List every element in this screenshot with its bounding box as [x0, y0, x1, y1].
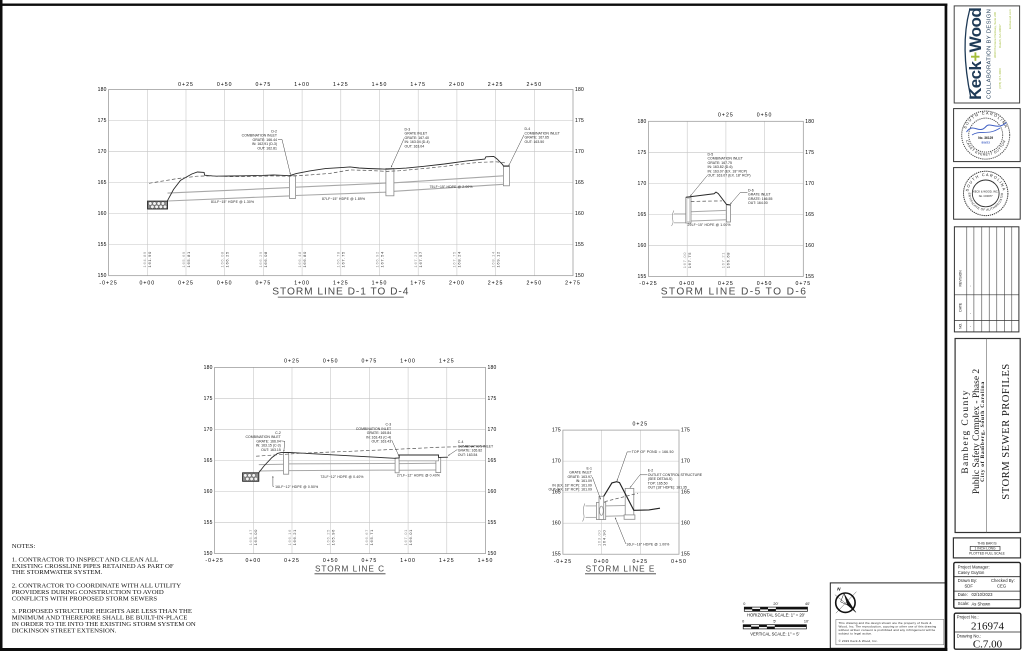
svg-text:166.25: 166.25 [225, 251, 230, 268]
svg-text:1+25: 1+25 [439, 558, 455, 564]
svg-text:40': 40' [805, 602, 810, 606]
svg-text:0: 0 [743, 602, 745, 606]
svg-text:OUT (18" HDPE): 161.35: OUT (18" HDPE): 161.35 [648, 486, 687, 490]
svg-text:155: 155 [204, 520, 213, 526]
svg-text:1+50: 1+50 [372, 82, 388, 88]
svg-text:175: 175 [204, 396, 213, 402]
svg-text:167.54: 167.54 [379, 251, 384, 268]
svg-text:180: 180 [575, 87, 584, 93]
svg-text:-: - [968, 313, 972, 314]
svg-text:175: 175 [552, 428, 561, 434]
svg-text:170: 170 [575, 149, 584, 155]
svg-text:164.90: 164.90 [601, 530, 606, 547]
svg-text:0+75: 0+75 [256, 280, 272, 286]
svg-text:155: 155 [98, 242, 107, 248]
svg-text:Duluth, GA 30097: Duluth, GA 30097 [998, 24, 1002, 48]
svg-text:REVISION: REVISION [959, 270, 963, 287]
svg-text:0+25: 0+25 [178, 82, 194, 88]
svg-text:169.12: 169.12 [495, 251, 500, 268]
svg-text:0+00: 0+00 [139, 280, 155, 286]
svg-text:10': 10' [804, 620, 809, 624]
svg-text:180: 180 [638, 119, 647, 125]
svg-text:150: 150 [204, 551, 213, 557]
svg-text:Scale:: Scale: [958, 601, 970, 606]
svg-text:-: - [968, 285, 972, 286]
svg-text:0+50: 0+50 [323, 558, 339, 564]
svg-text:5': 5' [773, 620, 776, 624]
svg-text:keckwood.com: keckwood.com [1008, 9, 1012, 29]
svg-text:180: 180 [98, 87, 107, 93]
svg-text:Bamberg County: Bamberg County [961, 389, 971, 474]
svg-text:155: 155 [638, 274, 647, 280]
svg-text:160: 160 [488, 489, 497, 495]
svg-text:OUT (EX. 18" RCP): 161.09: OUT (EX. 18" RCP): 161.09 [549, 488, 592, 492]
svg-text:0+50: 0+50 [671, 559, 687, 565]
svg-text:2+00: 2+00 [449, 82, 465, 88]
svg-text:Project Manager:: Project Manager: [958, 564, 990, 569]
svg-text:16LF~18" HDPE @ 1.00%: 16LF~18" HDPE @ 1.00% [626, 542, 669, 546]
svg-text:165: 165 [575, 180, 584, 186]
svg-text:STORM LINE D-1 TO D-4: STORM LINE D-1 TO D-4 [272, 287, 409, 298]
svg-text:165.81: 165.81 [186, 251, 191, 268]
svg-text:166.80: 166.80 [302, 251, 307, 268]
svg-text:1+50: 1+50 [478, 558, 494, 564]
svg-text:8/9/23: 8/9/23 [982, 140, 991, 144]
svg-text:175: 175 [638, 150, 647, 156]
svg-text:OUT: 163.54: OUT: 163.54 [458, 453, 478, 457]
svg-text:Drawn By:: Drawn By: [958, 578, 977, 583]
svg-text:-0+25: -0+25 [205, 558, 223, 564]
svg-text:Checked By:: Checked By: [991, 578, 1015, 583]
svg-text:subject to legal action.: subject to legal action. [839, 631, 873, 635]
svg-text:0+50: 0+50 [217, 82, 233, 88]
svg-text:-: - [968, 326, 972, 327]
svg-text:OUT: 163.07 (EX. 18" RCP): OUT: 163.07 (EX. 18" RCP) [708, 174, 751, 178]
svg-text:165: 165 [638, 212, 647, 218]
svg-text:C.7.00: C.7.00 [973, 639, 1003, 651]
svg-text:165.71: 165.71 [369, 529, 374, 546]
svg-text:TOP OF POND = 166.50: TOP OF POND = 166.50 [632, 450, 674, 454]
svg-text:160: 160 [575, 211, 584, 217]
svg-text:0+75: 0+75 [362, 558, 378, 564]
svg-text:166.08: 166.08 [263, 251, 268, 268]
svg-text:167.75: 167.75 [341, 251, 346, 268]
svg-text:3090 Premiere Parkway, Suite 2: 3090 Premiere Parkway, Suite 200 [993, 12, 997, 58]
svg-text:Project No.:: Project No.: [957, 615, 979, 620]
svg-text:167.75: 167.75 [687, 252, 692, 269]
svg-text:0+75: 0+75 [362, 359, 378, 365]
svg-text:STORM LINE D-5 TO D-6: STORM LINE D-5 TO D-6 [661, 287, 808, 298]
svg-text:155: 155 [575, 242, 584, 248]
svg-text:1+25: 1+25 [333, 280, 349, 286]
svg-text:NO.: NO. [959, 323, 963, 329]
svg-text:STORM LINE E: STORM LINE E [586, 564, 656, 573]
svg-text:170: 170 [552, 459, 561, 465]
svg-text:180: 180 [204, 365, 213, 371]
svg-text:2+25: 2+25 [488, 280, 504, 286]
svg-text:160: 160 [805, 243, 814, 249]
svg-text:170: 170 [805, 181, 814, 187]
svg-text:155: 155 [805, 274, 814, 280]
svg-text:1+00: 1+00 [400, 558, 416, 564]
svg-text:180: 180 [805, 119, 814, 125]
svg-text:160: 160 [638, 243, 647, 249]
svg-text:0+00: 0+00 [245, 558, 261, 564]
svg-text:2+50: 2+50 [526, 280, 542, 286]
svg-text:155: 155 [552, 552, 561, 558]
svg-text:STORM LINE C: STORM LINE C [315, 564, 385, 573]
svg-text:2+50: 2+50 [526, 82, 542, 88]
svg-text:175: 175 [488, 396, 497, 402]
svg-text:175: 175 [98, 118, 107, 124]
svg-text:168.24: 168.24 [457, 251, 462, 268]
svg-text:1+00: 1+00 [400, 359, 416, 365]
svg-text:THIS BAR IS: THIS BAR IS [977, 542, 997, 546]
svg-text:DICKINSON STREET EXTENSION.: DICKINSON STREET EXTENSION. [12, 627, 117, 634]
svg-text:170: 170 [98, 149, 107, 155]
svg-text:-0+25: -0+25 [554, 559, 572, 565]
svg-text:1+50: 1+50 [372, 280, 388, 286]
svg-text:155: 155 [488, 520, 497, 526]
svg-text:Casey Guyton: Casey Guyton [958, 570, 985, 575]
svg-text:0+25: 0+25 [718, 113, 734, 119]
svg-text:KECK & WOOD, INC.: KECK & WOOD, INC. [973, 189, 998, 193]
svg-text:PLOTTED FULL SCALE: PLOTTED FULL SCALE [969, 552, 1006, 556]
svg-text:0+25: 0+25 [178, 280, 194, 286]
svg-text:1+00: 1+00 [294, 82, 310, 88]
svg-text:81LF~15" HDPE @ 1.30%: 81LF~15" HDPE @ 1.30% [211, 200, 254, 204]
svg-text:160: 160 [204, 489, 213, 495]
svg-text:As Shown: As Shown [972, 601, 992, 606]
svg-text:161.90: 161.90 [147, 251, 152, 268]
svg-text:CEG: CEG [997, 584, 1006, 589]
svg-text:170: 170 [638, 181, 647, 187]
svg-text:216974: 216974 [971, 620, 1005, 632]
svg-text:STORM SEWER PROFILES: STORM SEWER PROFILES [1001, 363, 1012, 499]
svg-text:75LF~15" HDPE @ 2.00%: 75LF~15" HDPE @ 2.00% [430, 185, 473, 189]
svg-text:SDF: SDF [965, 584, 974, 589]
svg-text:87LF~15" HDPE @ 1.89%: 87LF~15" HDPE @ 1.89% [322, 197, 365, 201]
svg-text:165.96: 165.96 [331, 529, 336, 546]
svg-text:(678) 417-4000: (678) 417-4000 [998, 68, 1002, 89]
svg-text:OUT: 163.15: OUT: 163.15 [261, 448, 281, 452]
svg-text:NOTES:: NOTES: [12, 543, 36, 550]
svg-text:-0+25: -0+25 [639, 281, 657, 287]
svg-text:170: 170 [488, 427, 497, 433]
svg-text:72LF~12" HDPE @ 0.40%: 72LF~12" HDPE @ 0.40% [320, 475, 363, 479]
svg-text:0: 0 [742, 620, 744, 624]
svg-text:-0+25: -0+25 [99, 280, 117, 286]
svg-text:0+25: 0+25 [284, 359, 300, 365]
svg-text:OUT: 164.00: OUT: 164.00 [748, 201, 768, 205]
svg-text:1+00: 1+00 [294, 280, 310, 286]
svg-text:175: 175 [681, 428, 690, 434]
svg-text:175: 175 [575, 118, 584, 124]
svg-text:OUT: 163.50: OUT: 163.50 [525, 140, 545, 144]
svg-text:COLLABORATION BY DESIGN: COLLABORATION BY DESIGN [986, 9, 992, 99]
svg-text:OUT: 162.81: OUT: 162.81 [257, 146, 277, 150]
svg-text:© 2023 Keck & Wood, Inc.: © 2023 Keck & Wood, Inc. [839, 639, 878, 643]
svg-text:OUT: 163.43: OUT: 163.43 [372, 440, 392, 444]
svg-text:170: 170 [204, 427, 213, 433]
svg-text:DATE: DATE [959, 302, 963, 312]
svg-text:VERTICAL SCALE: 1" = 5': VERTICAL SCALE: 1" = 5' [750, 632, 799, 637]
svg-text:165: 165 [204, 458, 213, 464]
svg-text:0+75: 0+75 [256, 82, 272, 88]
svg-text:1+75: 1+75 [410, 280, 426, 286]
svg-text:THE STORMWATER SYSTEM.: THE STORMWATER SYSTEM. [12, 569, 103, 576]
svg-text:1+25: 1+25 [439, 359, 455, 365]
svg-text:2+25: 2+25 [488, 82, 504, 88]
svg-text:2+75: 2+75 [565, 280, 581, 286]
svg-text:150: 150 [575, 273, 584, 279]
svg-text:16LF~12" HDPE @ 0.50%: 16LF~12" HDPE @ 0.50% [275, 485, 318, 489]
svg-text:0+25: 0+25 [284, 558, 300, 564]
svg-text:166.68: 166.68 [726, 252, 731, 269]
svg-text:Date:: Date: [958, 592, 968, 597]
svg-text:166.01: 166.01 [408, 529, 413, 546]
svg-text:1+25: 1+25 [333, 82, 349, 88]
svg-text:02/10/2023: 02/10/2023 [972, 592, 994, 597]
svg-text:0+50: 0+50 [323, 359, 339, 365]
svg-text:160: 160 [552, 521, 561, 527]
svg-text:165: 165 [488, 458, 497, 464]
svg-text:0+50: 0+50 [217, 280, 233, 286]
svg-text:1+75: 1+75 [410, 82, 426, 88]
svg-text:166.21: 166.21 [292, 529, 297, 546]
svg-text:29LF~15" HDPE @ 1.00%: 29LF~15" HDPE @ 1.00% [688, 223, 731, 227]
svg-text:Drawing No.:: Drawing No.: [957, 633, 981, 638]
svg-text:160: 160 [98, 211, 107, 217]
svg-text:150: 150 [488, 551, 497, 557]
svg-text:City of Bamberg, South Carolin: City of Bamberg, South Carolina [980, 381, 986, 482]
svg-text:HORIZONTAL SCALE: 1" = 20': HORIZONTAL SCALE: 1" = 20' [747, 613, 805, 618]
svg-text:No. C00377: No. C00377 [979, 194, 993, 198]
svg-text:175: 175 [805, 150, 814, 156]
svg-text:170: 170 [681, 459, 690, 465]
svg-text:165: 165 [98, 180, 107, 186]
svg-text:150: 150 [98, 273, 107, 279]
svg-text:165: 165 [805, 212, 814, 218]
svg-text:167.57: 167.57 [418, 251, 423, 268]
svg-text:1 INCH LONG: 1 INCH LONG [975, 547, 997, 551]
svg-text:165: 165 [681, 490, 690, 496]
svg-text:0+25: 0+25 [632, 421, 648, 427]
svg-text:160: 160 [681, 521, 690, 527]
svg-text:0+50: 0+50 [757, 113, 773, 119]
svg-text:155: 155 [681, 552, 690, 558]
svg-text:OUT: 163.04: OUT: 163.04 [405, 144, 425, 148]
svg-text:163.00: 163.00 [253, 529, 258, 546]
svg-text:2+00: 2+00 [449, 280, 465, 286]
svg-text:20': 20' [773, 602, 778, 606]
svg-text:CONFLICTS WITH PROPOSED STORM: CONFLICTS WITH PROPOSED STORM SEWERS [12, 596, 158, 603]
svg-text:180: 180 [488, 365, 497, 371]
svg-text:27LF~12" HDPE @ 0.40%: 27LF~12" HDPE @ 0.40% [397, 473, 440, 477]
